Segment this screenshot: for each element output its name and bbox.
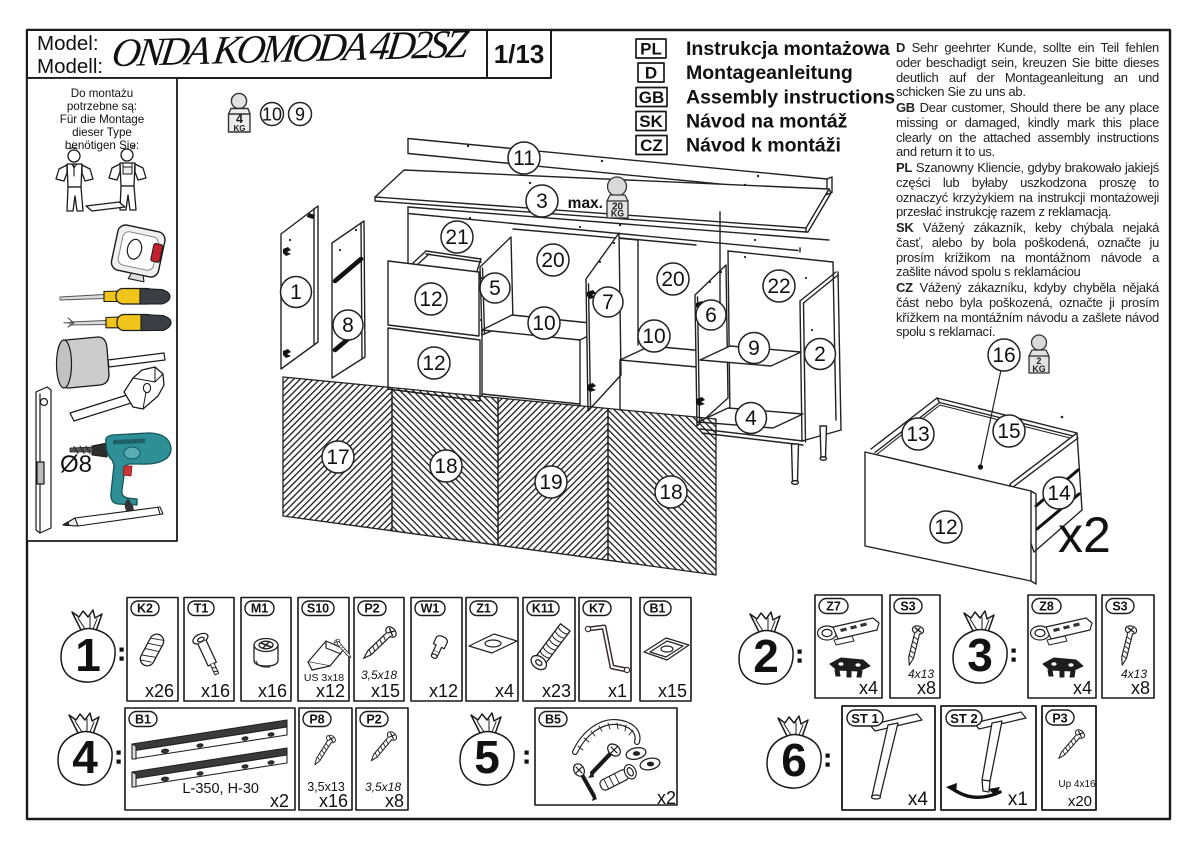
svg-text:P3: P3: [1052, 712, 1067, 726]
svg-text:W1: W1: [421, 602, 440, 616]
svg-text:1: 1: [290, 281, 302, 304]
svg-text:KG: KG: [611, 209, 624, 219]
svg-text:5: 5: [489, 277, 501, 300]
svg-text:21: 21: [445, 226, 468, 249]
svg-text:9: 9: [295, 105, 305, 125]
svg-text:US 3x18: US 3x18: [304, 672, 344, 684]
svg-text:ST 2: ST 2: [950, 711, 977, 726]
svg-text:P2: P2: [366, 713, 381, 727]
svg-text:K2: K2: [137, 602, 153, 616]
svg-text:Do montażu: Do montażu: [71, 87, 134, 100]
svg-text:22: 22: [767, 275, 790, 298]
svg-text:1: 1: [75, 629, 101, 681]
svg-text:x20: x20: [1068, 793, 1092, 810]
svg-text:x2: x2: [657, 788, 676, 808]
svg-text:12: 12: [419, 288, 442, 311]
svg-text:6: 6: [781, 734, 807, 786]
svg-text:x1: x1: [1008, 789, 1028, 810]
svg-text:x16: x16: [258, 681, 287, 701]
svg-text:B1: B1: [135, 713, 151, 727]
svg-text:x4: x4: [495, 681, 514, 701]
svg-text:3,5x18: 3,5x18: [361, 668, 397, 682]
svg-text:x4: x4: [1073, 678, 1092, 698]
svg-text:x15: x15: [371, 681, 400, 701]
svg-text:3: 3: [536, 190, 548, 213]
svg-text:potrzebne są:: potrzebne są:: [67, 100, 137, 113]
svg-text:x26: x26: [145, 681, 174, 701]
svg-text:13: 13: [906, 423, 929, 446]
svg-text:18: 18: [434, 455, 457, 478]
svg-text:max.: max.: [568, 195, 603, 212]
svg-text:4: 4: [72, 731, 98, 783]
svg-text:K7: K7: [589, 602, 605, 616]
svg-text:10: 10: [262, 105, 282, 125]
svg-text:KG: KG: [234, 124, 246, 133]
svg-text:Up 4x16: Up 4x16: [1058, 779, 1096, 790]
svg-text:P8: P8: [309, 713, 324, 727]
svg-text:10: 10: [532, 312, 555, 335]
svg-text:4: 4: [745, 407, 757, 430]
svg-text:L-350, H-30: L-350, H-30: [182, 781, 259, 797]
svg-text:GB: GB: [639, 88, 665, 107]
svg-text:14: 14: [1047, 482, 1071, 505]
svg-text:9: 9: [748, 337, 760, 360]
svg-text:Modell:: Modell:: [37, 55, 103, 78]
svg-text:Montageanleitung: Montageanleitung: [686, 62, 853, 84]
svg-text:16: 16: [992, 344, 1015, 367]
svg-text:2: 2: [753, 630, 779, 682]
svg-text:x4: x4: [908, 789, 929, 810]
svg-text:6: 6: [705, 304, 717, 327]
svg-text:P2: P2: [364, 602, 379, 616]
svg-text:1/13: 1/13: [494, 39, 545, 69]
svg-text:x8: x8: [1131, 678, 1150, 698]
svg-text:D: D: [645, 64, 657, 83]
svg-text:T1: T1: [194, 602, 209, 616]
svg-text:Assembly instructions: Assembly instructions: [686, 87, 895, 109]
svg-text:Z8: Z8: [1039, 600, 1054, 614]
svg-text:5: 5: [474, 731, 500, 783]
svg-text:20: 20: [541, 249, 564, 272]
svg-text:Für die Montage: Für die Montage: [60, 113, 144, 126]
svg-text:x1: x1: [608, 681, 627, 701]
svg-text:S10: S10: [307, 602, 329, 616]
svg-text:Z1: Z1: [476, 602, 491, 616]
svg-text:S3: S3: [900, 600, 915, 614]
svg-text:7: 7: [602, 291, 614, 314]
svg-text:KG: KG: [1032, 364, 1045, 374]
svg-text:x12: x12: [429, 681, 458, 701]
svg-text:20: 20: [661, 268, 684, 291]
svg-text:Instrukcja montażowa: Instrukcja montażowa: [686, 38, 890, 60]
svg-text:Model:: Model:: [37, 32, 99, 55]
svg-text:x16: x16: [319, 791, 348, 811]
svg-text:S3: S3: [1112, 600, 1127, 614]
svg-text:Návod k montáži: Návod k montáži: [686, 135, 841, 157]
svg-text:PL: PL: [640, 40, 662, 59]
svg-text:dieser Type: dieser Type: [72, 126, 132, 139]
svg-text:Z7: Z7: [826, 600, 841, 614]
svg-text:x8: x8: [385, 791, 404, 811]
svg-text:3: 3: [967, 629, 993, 681]
svg-text:K11: K11: [532, 602, 554, 616]
svg-text:B1: B1: [650, 602, 666, 616]
svg-text:15: 15: [997, 420, 1020, 443]
svg-text:ST 1: ST 1: [851, 711, 878, 726]
svg-text:CZ: CZ: [640, 136, 663, 155]
svg-text:12: 12: [422, 352, 445, 375]
svg-text:17: 17: [326, 446, 349, 469]
svg-text:x12: x12: [316, 681, 345, 701]
svg-text:x16: x16: [201, 681, 230, 701]
svg-text:B5: B5: [545, 713, 561, 727]
svg-text:x4: x4: [859, 678, 878, 698]
svg-text:x2: x2: [270, 791, 289, 811]
svg-text:Návod na montáž: Návod na montáž: [686, 111, 848, 133]
svg-text:x23: x23: [542, 681, 571, 701]
svg-text:M1: M1: [251, 602, 268, 616]
svg-text:18: 18: [659, 481, 682, 504]
svg-text:10: 10: [642, 325, 665, 348]
svg-text:2: 2: [814, 343, 826, 366]
svg-text:19: 19: [539, 471, 562, 494]
svg-text:SK: SK: [639, 112, 663, 131]
svg-text:x15: x15: [658, 681, 687, 701]
svg-text:11: 11: [513, 147, 535, 170]
svg-text:x8: x8: [917, 678, 936, 698]
svg-text:12: 12: [934, 516, 957, 539]
svg-text:Ø8: Ø8: [60, 451, 92, 478]
svg-text:x2: x2: [1058, 507, 1111, 563]
svg-text:ONDA KOMODA 4D2SZ: ONDA KOMODA 4D2SZ: [109, 21, 471, 75]
svg-text:8: 8: [342, 314, 354, 337]
